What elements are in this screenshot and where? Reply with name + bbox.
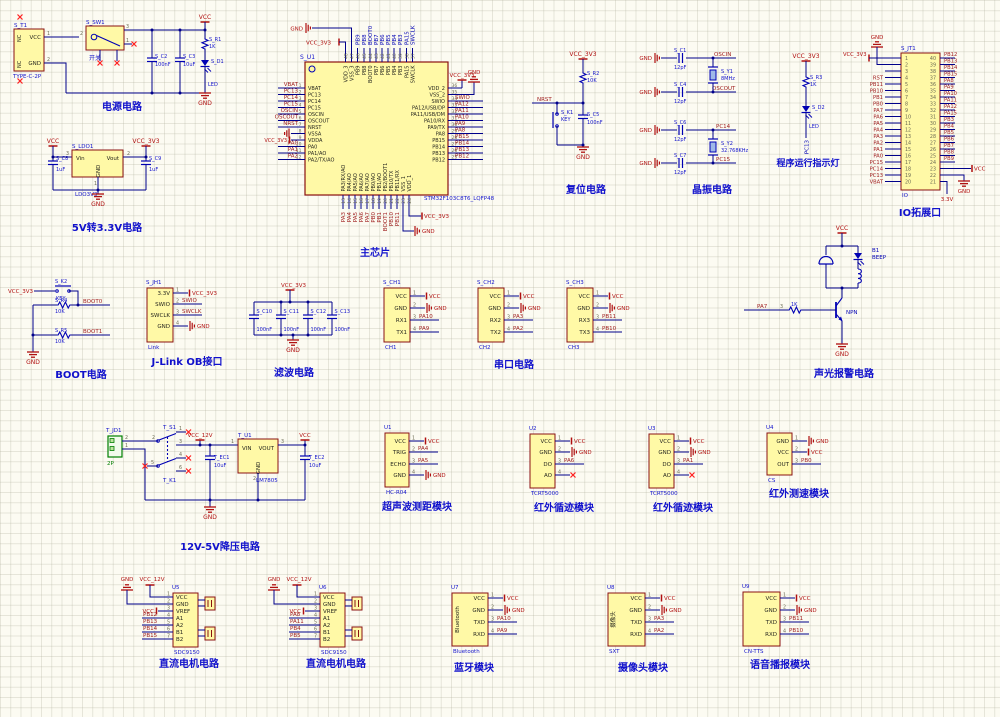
pin-number[interactable]: 2 (127, 151, 130, 157)
pin-name[interactable]: GND (256, 462, 262, 475)
junction-dot[interactable] (712, 129, 715, 132)
pin-number[interactable]: 4 (179, 452, 182, 458)
pin-name[interactable]: VIN (242, 446, 252, 452)
net-label[interactable]: PB11 (602, 314, 616, 320)
part-name[interactable]: Link (148, 345, 160, 351)
net-label[interactable]: PB12 (455, 154, 469, 160)
pin-number[interactable]: 45 (362, 53, 368, 59)
block-title[interactable]: 红外循迹模块 (534, 501, 595, 514)
net-label[interactable]: PA4 (873, 128, 883, 134)
block-title[interactable]: 声光报警电路 (813, 367, 875, 380)
pin-number[interactable]: 2 (507, 303, 510, 309)
pin-name[interactable]: VSSA (308, 132, 322, 138)
net-label[interactable]: PB4 (290, 626, 301, 632)
pin-number[interactable]: 4 (491, 629, 494, 635)
pin-name[interactable]: PB13 (432, 151, 445, 157)
pin-number[interactable]: 24 (930, 160, 936, 166)
power-net-label[interactable]: VCC (693, 439, 705, 445)
component-label[interactable]: PB9 (356, 34, 362, 45)
power-net-label[interactable]: VCC_12V (287, 577, 312, 583)
component-label[interactable]: S_R2 (587, 71, 599, 77)
component-label[interactable]: S_Y1 (721, 69, 733, 75)
pin-number[interactable]: 13 (341, 198, 347, 204)
pin-name[interactable]: OUT (777, 462, 789, 468)
component-label[interactable]: S_C7 (674, 153, 686, 159)
pin-number[interactable]: 5 (905, 82, 908, 88)
component-label[interactable]: 12pF (674, 137, 687, 143)
pin-name[interactable]: VCC (778, 450, 790, 456)
pin-number[interactable]: 23 (401, 198, 407, 204)
power-net-label[interactable]: VCC_3V3 (792, 53, 819, 60)
designator[interactable]: U9 (742, 584, 750, 590)
component-label[interactable]: 1K (209, 44, 216, 50)
pin-name[interactable]: B1 (176, 630, 183, 636)
block-title[interactable]: 红外循迹模块 (653, 501, 714, 514)
junction-dot[interactable] (712, 57, 715, 60)
power-net-label[interactable]: GND (203, 514, 217, 521)
pin-number[interactable]: 4 (314, 613, 317, 619)
pin-number[interactable]: 1 (491, 593, 494, 599)
net-label[interactable]: OSCIN (281, 108, 298, 114)
pin-name[interactable]: RXD (473, 632, 485, 638)
pin-name[interactable]: PC13 (308, 93, 321, 99)
power-net-label[interactable]: GND (121, 577, 134, 583)
component-label[interactable]: 100nF (335, 327, 351, 333)
pin-number[interactable]: 2 (677, 447, 680, 453)
pin-number[interactable]: 30 (930, 121, 936, 127)
led-icon[interactable] (802, 106, 810, 112)
power-net-label[interactable]: VCC (523, 294, 535, 300)
pin-number[interactable]: 1 (795, 436, 798, 442)
net-label[interactable]: PA4 (418, 446, 429, 452)
net-label[interactable]: PC13 (870, 173, 883, 179)
pin-name[interactable]: VCC (30, 35, 42, 41)
net-label[interactable]: RST (873, 76, 884, 82)
motor-connector[interactable] (205, 627, 215, 640)
pin-number[interactable]: 23 (930, 167, 936, 173)
component-label[interactable]: S_LDO1 (72, 144, 93, 150)
net-label[interactable]: PB9 (944, 156, 954, 162)
power-net-label[interactable]: VCC (799, 596, 811, 602)
led-arrow-icon[interactable] (861, 261, 865, 265)
wire[interactable] (44, 63, 66, 93)
pin-name[interactable]: VCC (396, 294, 408, 300)
component-label[interactable]: S_C6 (674, 120, 686, 126)
net-label[interactable]: PA6 (873, 115, 883, 121)
designator[interactable]: U1 (384, 425, 392, 431)
power-net-label[interactable]: GND (835, 351, 849, 358)
component-label[interactable]: S_R1 (209, 37, 221, 43)
pin-number[interactable]: 17 (365, 198, 371, 204)
pin-name[interactable]: TX3 (578, 330, 590, 336)
net-label[interactable]: PB7 (944, 143, 954, 149)
block-title[interactable]: 超声波测距模块 (381, 500, 453, 513)
net-label[interactable]: PC13 (284, 89, 299, 95)
pin-name[interactable]: VCC (176, 595, 188, 601)
net-label[interactable]: PA2 (654, 628, 664, 634)
component-label[interactable]: 10K (55, 309, 65, 315)
pin-name[interactable]: RXD (630, 632, 642, 638)
pin-number[interactable]: 1 (176, 288, 179, 294)
pin-number[interactable]: 1 (558, 436, 561, 442)
pin-number[interactable]: 4 (413, 327, 416, 333)
pin-number[interactable]: 1 (412, 436, 415, 442)
pin-name[interactable]: GND (394, 306, 407, 312)
pin-name[interactable]: A1 (176, 616, 183, 622)
pin-name[interactable]: PA0 (308, 145, 317, 151)
pin-number[interactable]: 2 (167, 599, 170, 605)
pin-number[interactable]: 2 (152, 435, 155, 441)
junction-dot[interactable] (77, 304, 80, 307)
coil-icon[interactable] (858, 269, 861, 283)
designator[interactable]: U2 (529, 426, 537, 432)
pin-number[interactable]: 2 (795, 447, 798, 453)
pin-number[interactable]: 10 (905, 115, 911, 121)
pin-number[interactable]: 1 (413, 291, 416, 297)
junction-dot[interactable] (556, 102, 559, 105)
component-label[interactable]: T_U1 (237, 433, 252, 439)
part-name[interactable]: STM32F103C8T6_LQFP48 (424, 196, 495, 202)
symbol-segment[interactable] (836, 298, 842, 306)
pin-number[interactable]: 36 (930, 82, 936, 88)
pin-name[interactable]: RX3 (579, 318, 591, 324)
power-net-label[interactable]: GND (468, 70, 481, 76)
pin-number[interactable]: 4 (558, 470, 561, 476)
pin-name[interactable]: VCC (395, 439, 407, 445)
pin-number[interactable]: 1 (905, 56, 908, 62)
pin-number[interactable]: 33 (930, 102, 936, 108)
symbol-segment[interactable] (159, 434, 176, 441)
net-label[interactable]: PB12 (944, 52, 957, 58)
net-label[interactable]: PA3 (654, 616, 665, 622)
pin-number[interactable]: 3 (413, 315, 416, 321)
pin-number[interactable]: 4 (412, 470, 415, 476)
net-label[interactable]: PB14 (944, 65, 958, 71)
wire[interactable] (462, 82, 474, 95)
component-label[interactable]: 1K (791, 302, 798, 308)
power-net-label[interactable]: VCC (811, 450, 823, 456)
pin-name[interactable]: VBAT (308, 86, 322, 92)
pin-name[interactable]: A2 (323, 623, 330, 629)
component-label[interactable]: S_T1 (14, 23, 27, 29)
pin-number[interactable]: 42 (380, 53, 386, 59)
wire[interactable] (940, 182, 947, 195)
power-net-label[interactable]: VCC (612, 294, 624, 300)
block-title[interactable]: BOOT电路 (55, 368, 107, 381)
motor-connector[interactable] (352, 627, 362, 640)
component-label[interactable]: 1K (810, 82, 817, 88)
part-name[interactable]: HC-R04 (386, 490, 407, 496)
power-net-label[interactable]: VCC (199, 14, 211, 21)
pin-name[interactable]: PB14 (432, 145, 445, 151)
pin-number[interactable]: 20 (905, 180, 911, 186)
net-label[interactable]: PA2 (873, 141, 883, 147)
junction-dot[interactable] (712, 162, 715, 165)
net-label[interactable]: PA11 (290, 619, 304, 625)
pin-name[interactable]: DO (543, 462, 552, 468)
net-label[interactable]: PC15 (870, 160, 883, 166)
net-label[interactable]: VBAT (870, 180, 884, 186)
pin-name[interactable]: VSS_2 (430, 93, 445, 99)
junction-dot[interactable] (582, 144, 585, 147)
net-label[interactable]: PB15 (455, 134, 470, 140)
net-label[interactable]: PB10 (870, 89, 883, 95)
pin-number[interactable]: 19 (905, 173, 911, 179)
pin-number[interactable]: 7 (905, 95, 908, 101)
power-net-label[interactable]: VCC_3V3 (843, 52, 867, 58)
net-label[interactable]: PA5 (418, 458, 429, 464)
power-net-label[interactable]: VCC_3V3 (306, 41, 331, 47)
pin-name[interactable]: Vin (76, 156, 85, 162)
pin-name[interactable]: PB15 (432, 138, 445, 144)
part-name[interactable]: Bluetooth (453, 649, 480, 655)
pin-number[interactable]: 40 (392, 53, 398, 59)
power-net-label[interactable]: GND (91, 201, 105, 208)
power-net-label[interactable]: GND (804, 608, 817, 614)
net-label[interactable]: PC15 (716, 157, 731, 163)
pin-name[interactable]: ECHO (390, 462, 406, 468)
net-label[interactable]: PB6 (944, 137, 954, 143)
pin-name[interactable]: OSCOUT (308, 119, 330, 125)
pin-number[interactable]: 3 (281, 439, 284, 445)
net-label[interactable]: PA9 (455, 121, 466, 127)
pin-number[interactable]: 37 (930, 76, 936, 82)
block-title[interactable]: 红外测速模块 (769, 487, 830, 500)
net-label[interactable]: BOOT0 (83, 299, 103, 305)
power-net-label[interactable]: VCC (429, 294, 441, 300)
pin-name[interactable]: TXD (630, 620, 642, 626)
power-net-label[interactable]: VCC_3V3 (132, 138, 159, 145)
pin-name[interactable]: TRIG (392, 450, 406, 456)
wire[interactable] (69, 291, 78, 305)
pin-name[interactable]: VDD_1 (407, 175, 413, 192)
pin-number[interactable]: 27 (930, 141, 936, 147)
part-name[interactable]: CH3 (568, 345, 580, 351)
net-label[interactable]: PA10 (944, 91, 957, 97)
pin-number[interactable]: 18 (371, 198, 377, 204)
component-label[interactable]: S_R5 (55, 328, 67, 334)
pin-number[interactable]: 40 (930, 56, 936, 62)
pin-name[interactable]: B1 (323, 630, 330, 636)
part-name[interactable]: TCRT5000 (649, 491, 678, 497)
pin-name[interactable]: DO (662, 462, 671, 468)
pin-number[interactable]: 3 (507, 315, 510, 321)
power-net-label[interactable]: GND (433, 473, 446, 479)
component-label[interactable]: LED (208, 82, 218, 88)
part-name[interactable]: TCRT5000 (530, 491, 559, 497)
pin-name[interactable]: PA10/RX (424, 119, 446, 125)
power-net-label[interactable]: 3.3V (941, 197, 954, 203)
wire[interactable] (877, 47, 901, 65)
pin-number[interactable]: 4 (299, 103, 302, 109)
component-label[interactable]: NPN (846, 310, 858, 316)
block-title[interactable]: 直流电机电路 (306, 657, 367, 670)
pin-number[interactable]: 6 (314, 627, 317, 633)
pin-number[interactable]: 2 (314, 599, 317, 605)
pin-name[interactable]: VDD_2 (428, 86, 445, 92)
designator[interactable]: U6 (319, 585, 327, 591)
net-label[interactable]: NRST (283, 121, 298, 127)
pin-number[interactable]: 1 (167, 592, 170, 598)
pin-number[interactable]: 1 (231, 439, 234, 445)
component-label[interactable]: 8MHz (721, 76, 735, 82)
pin-name[interactable]: 摄像头 (609, 611, 617, 628)
pin-name[interactable]: PB9 (356, 66, 362, 76)
block-title[interactable]: 程序运行指示灯 (776, 157, 839, 169)
net-label[interactable]: PA12 (455, 102, 469, 108)
net-label[interactable]: PA8 (290, 612, 301, 618)
pin-number[interactable]: 47 (350, 53, 356, 59)
block-title[interactable]: 晶振电路 (692, 183, 733, 196)
connector-label[interactable]: 2P (107, 461, 114, 467)
pin-name[interactable]: PB3 (398, 66, 404, 76)
pin-number[interactable]: 3 (648, 617, 651, 623)
net-label[interactable]: PA8 (455, 128, 466, 134)
led-icon[interactable] (854, 253, 862, 259)
power-net-label[interactable]: GND (669, 608, 682, 614)
net-label[interactable]: PA10 (497, 616, 511, 622)
component-label[interactable]: LED (809, 124, 819, 130)
block-title[interactable]: 主芯片 (360, 246, 390, 259)
component-label[interactable]: 10uF (214, 463, 227, 469)
crystal-icon[interactable] (710, 142, 716, 152)
pin-name[interactable]: SWCLK (151, 313, 171, 319)
power-net-label[interactable]: GND (26, 359, 40, 366)
junction-dot[interactable] (151, 92, 154, 95)
pin-name[interactable]: GND (472, 608, 485, 614)
pin-number[interactable]: 4 (596, 327, 599, 333)
component-label[interactable]: S_D1 (211, 59, 224, 65)
component-label[interactable]: 12pF (674, 99, 687, 105)
pin-number[interactable]: 36 (452, 83, 458, 89)
power-net-label[interactable]: VCC_3V3 (569, 51, 596, 58)
power-net-label[interactable]: VCC (299, 433, 311, 439)
pin-number[interactable]: 2 (783, 605, 786, 611)
power-net-label[interactable]: GND (639, 56, 652, 62)
power-net-label[interactable]: GND (639, 128, 652, 134)
net-label[interactable]: PA7 (757, 304, 768, 310)
pin-number[interactable]: 14 (347, 198, 353, 204)
pin-name[interactable]: AO (544, 473, 553, 479)
pin-number[interactable]: 5 (151, 460, 154, 466)
pin-number[interactable]: 48 (344, 53, 350, 59)
pin-number[interactable]: 3 (783, 617, 786, 623)
net-label[interactable]: PB11 (870, 82, 883, 88)
designator[interactable]: U3 (648, 426, 656, 432)
power-net-label[interactable]: GND (422, 229, 435, 235)
pin-number[interactable]: 39 (930, 63, 936, 69)
pin-name[interactable]: PA11/USB/DM (411, 112, 445, 118)
component-label[interactable]: B1 (872, 248, 879, 254)
net-label[interactable]: PB14 (143, 626, 158, 632)
component-label[interactable]: S_C2 (155, 54, 167, 60)
component-label[interactable]: S_R3 (810, 75, 822, 81)
net-label[interactable]: PB10 (602, 326, 617, 332)
component-label[interactable]: SWCLK (411, 25, 417, 45)
motor-connector[interactable] (352, 597, 362, 610)
net-label[interactable]: PB12 (143, 612, 157, 618)
net-label[interactable]: PA1 (873, 147, 883, 153)
designator[interactable]: U8 (607, 585, 615, 591)
part-name[interactable]: CH1 (385, 345, 396, 351)
net-label[interactable]: PC14 (716, 124, 731, 130)
pin-number[interactable]: 21 (389, 198, 395, 204)
pin-name[interactable]: VCC (541, 439, 553, 445)
led-arrow-icon[interactable] (208, 68, 212, 72)
component-label[interactable]: 100nF (587, 120, 603, 126)
pin-number[interactable]: 4 (648, 629, 651, 635)
pin-name[interactable]: VCC (490, 294, 502, 300)
pin-number[interactable]: 1 (126, 38, 129, 44)
pin-number[interactable]: 2 (412, 447, 415, 453)
component-label[interactable]: 10K (587, 78, 597, 84)
pin-number[interactable]: 2 (596, 303, 599, 309)
net-label[interactable]: PB5 (290, 633, 301, 639)
resistor-icon[interactable] (202, 38, 208, 50)
pin-number[interactable]: 17 (905, 160, 911, 166)
component-label[interactable]: S_C13 (335, 309, 351, 315)
power-net-label[interactable]: GND (816, 439, 829, 445)
pin-name[interactable]: GND (96, 165, 102, 178)
part-name[interactable]: CH2 (479, 345, 490, 351)
component-label[interactable]: S_C11 (284, 309, 300, 315)
wire[interactable] (150, 585, 158, 597)
component-label[interactable]: 32.768KHz (721, 148, 749, 154)
wire[interactable] (409, 209, 421, 216)
pin-number[interactable]: 6 (167, 627, 170, 633)
pin-name[interactable]: TX2 (489, 330, 501, 336)
connector-pin[interactable] (110, 447, 114, 451)
pin-number[interactable]: 1 (648, 593, 651, 599)
net-label[interactable]: PB1 (873, 95, 883, 101)
pin-number[interactable]: 15 (905, 147, 911, 153)
net-label[interactable]: PB5 (944, 130, 954, 136)
designator[interactable]: S_JT1 (901, 46, 916, 52)
component-label[interactable]: S_C4 (674, 82, 686, 88)
power-net-label[interactable]: GND (576, 154, 590, 161)
pin-name[interactable]: GND (577, 306, 590, 312)
net-label[interactable]: PA8 (944, 78, 954, 84)
pin-name[interactable]: OSCIN (308, 112, 324, 118)
pin-number[interactable]: 3 (126, 24, 129, 30)
component-label[interactable]: S_R4 (55, 298, 67, 304)
pin-name[interactable]: PA2/TX/AO (308, 158, 334, 164)
net-label[interactable]: PA15 (944, 111, 957, 117)
pin-number[interactable]: 4 (167, 613, 170, 619)
pin-number[interactable]: 32 (930, 108, 936, 114)
pin-name[interactable]: TX1 (395, 330, 407, 336)
pin-number[interactable]: 3 (596, 315, 599, 321)
motor-connector[interactable] (205, 597, 215, 610)
pin-number[interactable]: 3 (176, 310, 179, 316)
component-label[interactable]: 100nF (311, 327, 327, 333)
pin-number[interactable]: 6 (905, 89, 908, 95)
pin-number[interactable]: 2 (299, 90, 302, 96)
pin-number[interactable]: 35 (930, 89, 936, 95)
power-net-label[interactable]: VCC (974, 167, 986, 173)
pin-number[interactable]: 9 (905, 108, 908, 114)
net-label[interactable]: PB15 (143, 633, 158, 639)
pin-number[interactable]: 19 (377, 198, 383, 204)
pin-name[interactable]: SWCLK (411, 65, 417, 83)
component-label[interactable]: S_K1 (561, 110, 573, 116)
component-label[interactable]: 1uF (149, 167, 158, 173)
power-net-label[interactable]: GND (528, 306, 541, 312)
net-label[interactable]: PB0 (873, 102, 883, 108)
pin-name[interactable]: Vout (107, 156, 120, 162)
net-label[interactable]: PA3 (513, 314, 524, 320)
designator[interactable]: S_JH1 (146, 280, 162, 286)
